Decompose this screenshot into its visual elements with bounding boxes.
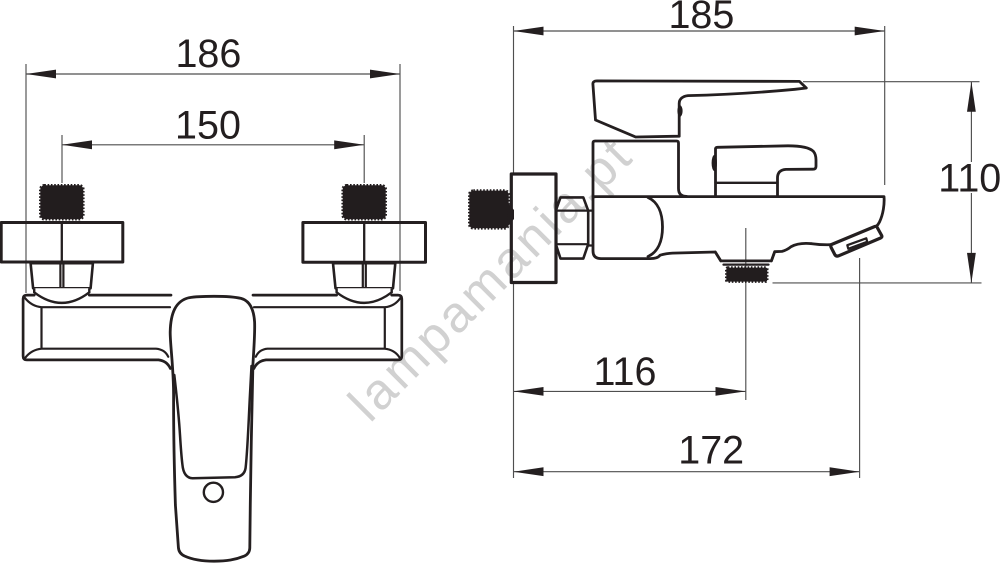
svg-text:186: 186 xyxy=(175,32,241,76)
svg-text:150: 150 xyxy=(175,104,241,148)
svg-text:185: 185 xyxy=(668,0,734,37)
svg-text:110: 110 xyxy=(938,157,1000,201)
svg-text:172: 172 xyxy=(678,429,744,473)
svg-text:116: 116 xyxy=(594,350,657,394)
